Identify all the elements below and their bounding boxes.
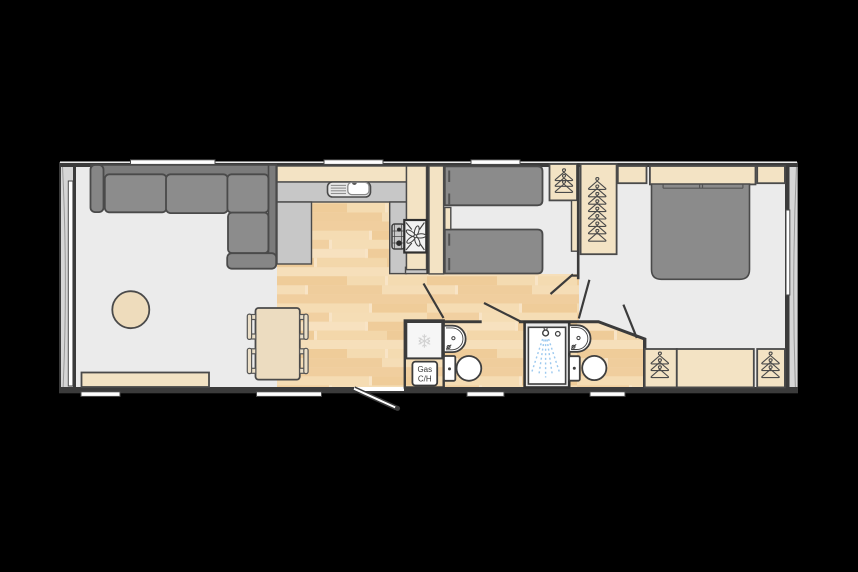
svg-text:Gas: Gas (417, 365, 432, 374)
svg-text:C/H: C/H (418, 374, 432, 383)
